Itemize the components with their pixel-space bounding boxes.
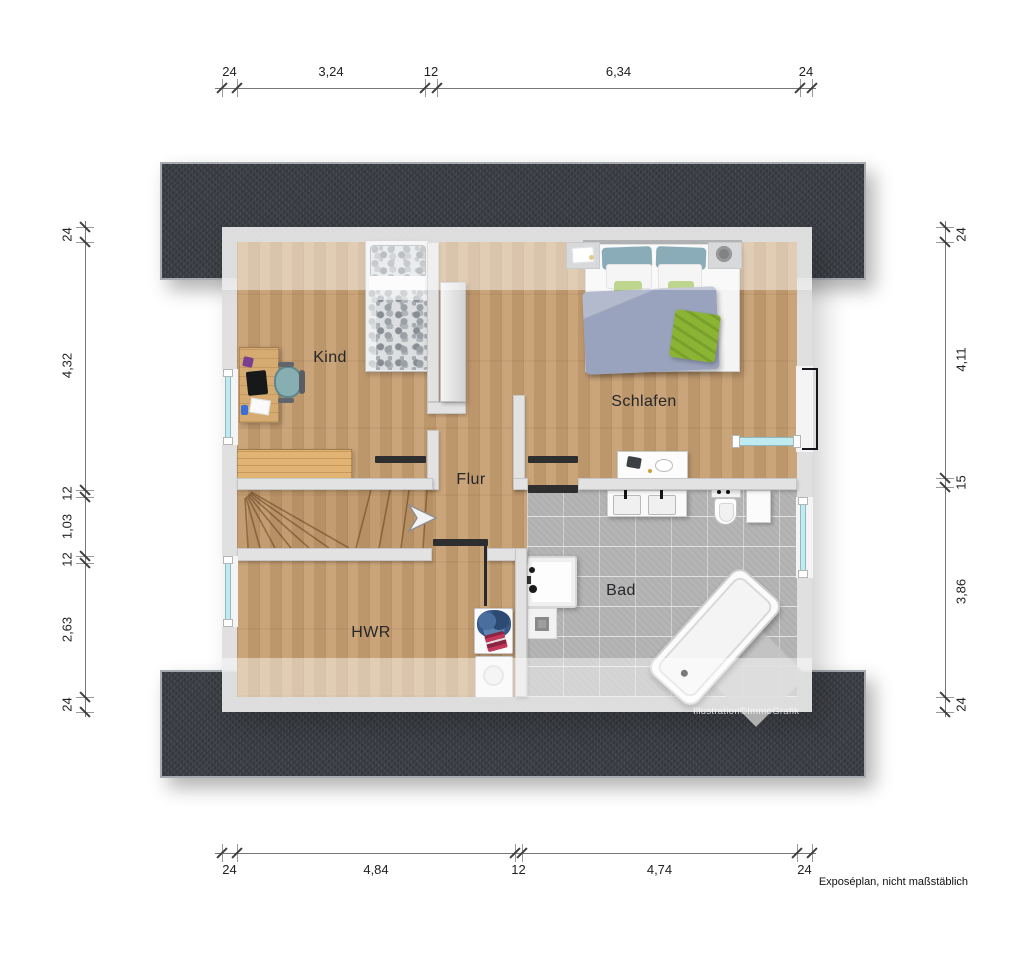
window-frame-cap [223, 619, 233, 627]
shower-tray [526, 556, 577, 608]
window-frame-cap [798, 497, 808, 505]
dimension-label: 24 [208, 64, 252, 79]
wall-stairs-hwr [237, 548, 432, 561]
shower-fixture [529, 567, 535, 573]
dimension-label: 4,74 [638, 862, 682, 877]
washbasin-left [613, 495, 641, 515]
dimension-label: 15 [954, 460, 969, 504]
window-kind [225, 376, 231, 438]
dimension-line-left [85, 221, 86, 717]
dimension-label: 12 [409, 64, 453, 79]
shower-valve [527, 576, 531, 584]
window-frame-cap [793, 435, 801, 448]
roof-slope-overlay-top [222, 227, 812, 290]
window-frame-cap [798, 570, 808, 578]
dimension-label: 12 [497, 862, 541, 877]
toilet-flush-button [717, 490, 721, 494]
sideboard-schlafen [528, 456, 578, 463]
room-label-schlafen: Schlafen [611, 393, 676, 411]
dimension-label: 24 [954, 212, 969, 256]
chimney-block [440, 282, 466, 402]
door-opening-kind [375, 456, 426, 463]
dimension-label: 24 [954, 682, 969, 726]
floor-drain [535, 617, 549, 631]
wall-schlafen-bad [578, 478, 797, 490]
dimension-line-top [215, 88, 816, 89]
dimension-line-right [945, 221, 946, 717]
bathroom-cabinet [746, 490, 771, 523]
window-bad [800, 504, 806, 571]
dimension-label: 4,84 [354, 862, 398, 877]
wall-under-chimney [427, 402, 466, 414]
dimension-label: 4,11 [954, 338, 969, 382]
dresser-tray [655, 459, 673, 472]
dimension-label: 24 [60, 212, 75, 256]
roof-slope-overlay-bottom [222, 658, 812, 712]
window-frame-cap [223, 556, 233, 564]
dimension-label: 3,24 [309, 64, 353, 79]
desk-bottle [241, 405, 248, 415]
toilet-flush-button [726, 490, 730, 494]
room-label-kind: Kind [313, 349, 347, 367]
dimension-label: 24 [784, 64, 828, 79]
watermark: Illustration©ImmoGrafik [693, 706, 799, 717]
wall-kind-stairs [237, 478, 433, 490]
laptop [246, 370, 268, 396]
window-frame-cap [223, 369, 233, 377]
dimension-label: 6,34 [597, 64, 641, 79]
shower-fixture [529, 585, 537, 593]
room-label-flur: Flur [456, 471, 485, 489]
plan-note: Exposéplan, nicht maßstäblich [819, 876, 968, 888]
room-label-hwr: HWR [351, 624, 390, 642]
dimension-label: 4,32 [60, 344, 75, 388]
desk-notebook [242, 356, 254, 368]
dresser-gold-item [648, 469, 652, 473]
balcony-window-glass [738, 437, 798, 446]
window-hwr [225, 562, 231, 621]
dimension-label: 24 [208, 862, 252, 877]
door-opening-hwr [433, 539, 488, 546]
desk-chair-seat [274, 366, 302, 398]
staircase [237, 490, 433, 548]
desk-chair-back [299, 370, 305, 394]
dresser-clutch [626, 456, 642, 469]
desk-chair-armrest [278, 362, 294, 367]
door-opening-bad [528, 485, 578, 493]
desk-paper [249, 398, 271, 416]
wall-flur-bad-stub [513, 478, 528, 490]
stair-direction-arrow [408, 504, 438, 539]
dimension-label: 24 [783, 862, 827, 877]
door-leaf-hwr [484, 546, 487, 606]
kind-bed-duvet [368, 290, 428, 370]
stair-treads [237, 490, 433, 548]
dimension-label: 3,86 [954, 570, 969, 614]
window-frame-cap [732, 435, 740, 448]
floorplan-page: Kind Schlafen Flur HWR Bad Illustration©… [0, 0, 1030, 954]
stair-railing [237, 449, 352, 481]
dimension-label: 2,63 [60, 608, 75, 652]
balcony-door-leaf [802, 368, 818, 450]
room-label-bad: Bad [606, 582, 636, 600]
dimension-label: 24 [60, 682, 75, 726]
toilet-bowl-inner [719, 503, 734, 522]
window-frame-cap [223, 437, 233, 445]
desk-chair-armrest [278, 398, 294, 403]
blanket-green [669, 309, 721, 363]
wall-flur-schlafen [513, 395, 525, 490]
dimension-label: 12 [60, 537, 75, 581]
